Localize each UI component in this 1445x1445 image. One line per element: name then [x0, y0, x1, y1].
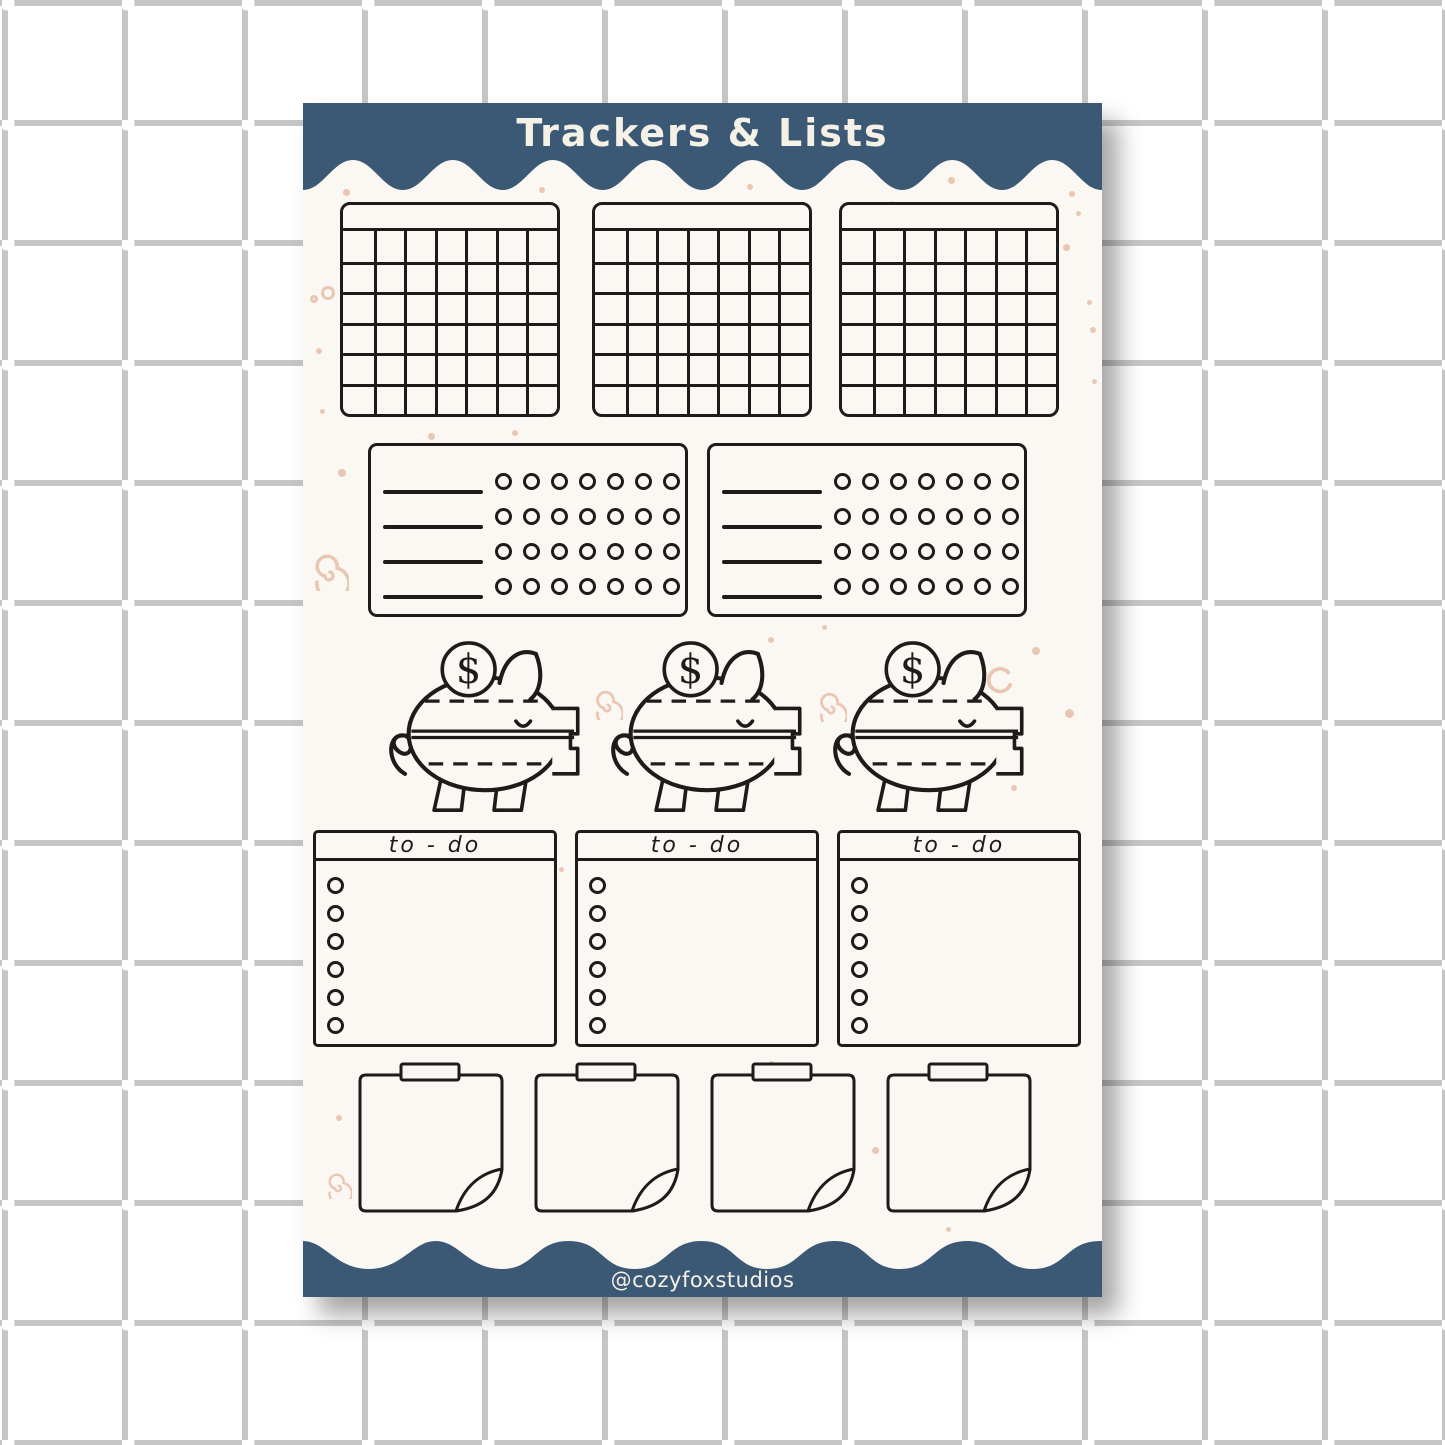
calendar-cell — [595, 292, 626, 323]
calendar-cell — [778, 353, 809, 384]
calendar-cell — [995, 262, 1026, 293]
doodle-ring-icon — [321, 286, 335, 300]
calendar-cell — [778, 231, 809, 262]
calendar-cell — [873, 353, 904, 384]
tracker-circle — [862, 543, 879, 560]
calendar-cell — [687, 231, 718, 262]
doodle-dot-icon — [1069, 191, 1075, 197]
calendar-cell — [626, 262, 657, 293]
tracker-circle — [974, 543, 991, 560]
tracker-circle — [635, 473, 652, 490]
calendar-cell — [656, 323, 687, 354]
calendar-cell — [374, 353, 405, 384]
calendar-cell — [873, 323, 904, 354]
calendar-cell — [873, 262, 904, 293]
tracker-circle — [635, 543, 652, 560]
tracker-circle — [974, 473, 991, 490]
calendar-cell — [496, 292, 527, 323]
doodle-dot-icon — [946, 1227, 951, 1232]
calendar-cell — [404, 231, 435, 262]
calendar-cell — [934, 292, 965, 323]
doodle-dot-icon — [1076, 211, 1081, 216]
calendar-header-blank — [343, 205, 557, 231]
doodle-dot-icon — [338, 469, 346, 477]
calendar-cell — [903, 384, 934, 415]
doodle-dot-icon — [316, 348, 322, 354]
calendar-cell — [687, 292, 718, 323]
calendar-cell — [995, 231, 1026, 262]
doodle-spiral-icon — [324, 1171, 352, 1203]
calendar-cell — [656, 353, 687, 384]
calendar-cell — [595, 323, 626, 354]
tracker-circle — [1002, 543, 1019, 560]
tracker-circle — [523, 578, 540, 595]
todo-checkbox-circle — [327, 961, 344, 978]
todo-checkbox-circle — [589, 961, 606, 978]
writing-line — [722, 525, 822, 529]
tracker-circle — [495, 578, 512, 595]
doodle-dot-icon — [822, 625, 827, 630]
doodle-dot-icon — [1063, 244, 1070, 251]
doodle-dot-icon — [512, 430, 518, 436]
calendar-cell — [778, 292, 809, 323]
todo-checkbox-circle — [589, 905, 606, 922]
todo-checkbox-circle — [851, 905, 868, 922]
calendar-cell — [404, 292, 435, 323]
tracker-circle — [834, 578, 851, 595]
tracker-circle — [890, 543, 907, 560]
calendar-cell — [748, 262, 779, 293]
calendar-cell — [748, 384, 779, 415]
calendar-cell — [343, 262, 374, 293]
calendar-cell — [626, 384, 657, 415]
calendar-cell — [687, 262, 718, 293]
doodle-dot-icon — [1090, 327, 1096, 333]
tracker-circle — [918, 508, 935, 525]
todo-checkbox-circle — [589, 989, 606, 1006]
calendar-cell — [374, 384, 405, 415]
calendar-cell — [496, 323, 527, 354]
calendar-cell — [717, 353, 748, 384]
writing-line — [383, 525, 483, 529]
calendar-cell — [717, 323, 748, 354]
tracker-circle — [663, 508, 680, 525]
calendar-cell — [465, 231, 496, 262]
todo-header-label: to - do — [578, 833, 816, 861]
calendar-cell — [496, 384, 527, 415]
taped-note-sticker — [704, 1061, 862, 1217]
tracker-circle — [862, 473, 879, 490]
todo-checkbox-circle — [327, 1017, 344, 1034]
calendar-cell — [995, 353, 1026, 384]
tracker-circle — [862, 578, 879, 595]
tracker-circle — [607, 473, 624, 490]
calendar-grid — [343, 231, 557, 414]
tracker-circle — [495, 543, 512, 560]
todo-checkbox-circle — [589, 1017, 606, 1034]
todo-checkbox-circle — [851, 989, 868, 1006]
doodle-dot-icon — [559, 867, 564, 872]
piggy-bank-sticker — [385, 641, 585, 814]
calendar-cell — [526, 353, 557, 384]
calendar-cell — [842, 231, 873, 262]
todo-list-sticker: to - do — [313, 830, 557, 1047]
calendar-cell — [435, 262, 466, 293]
tracker-circle — [663, 473, 680, 490]
calendar-cell — [343, 353, 374, 384]
piggy-bank-sticker — [829, 641, 1029, 814]
tracker-circle — [974, 508, 991, 525]
tracker-circle — [663, 543, 680, 560]
calendar-cell — [964, 353, 995, 384]
tracker-circle — [946, 473, 963, 490]
tracker-circle — [1002, 473, 1019, 490]
calendar-cell — [873, 292, 904, 323]
tracker-circle — [862, 508, 879, 525]
calendar-cell — [903, 231, 934, 262]
tracker-circle — [607, 508, 624, 525]
doodle-dot-icon — [1087, 300, 1092, 305]
doodle-dot-icon — [1032, 647, 1040, 655]
calendar-cell — [626, 231, 657, 262]
tracker-circle — [551, 543, 568, 560]
calendar-cell — [526, 323, 557, 354]
calendar-cell — [496, 262, 527, 293]
calendar-cell — [526, 292, 557, 323]
tracker-circle — [551, 473, 568, 490]
tracker-circle — [607, 543, 624, 560]
calendar-cell — [435, 384, 466, 415]
todo-header-label: to - do — [316, 833, 554, 861]
tracker-circle — [495, 473, 512, 490]
calendar-cell — [343, 292, 374, 323]
calendar-cell — [934, 353, 965, 384]
calendar-cell — [903, 262, 934, 293]
calendar-cell — [374, 262, 405, 293]
todo-checkbox-circle — [327, 905, 344, 922]
tracker-circle — [918, 578, 935, 595]
todo-checkbox-circle — [327, 877, 344, 894]
calendar-cell — [903, 353, 934, 384]
writing-line — [722, 560, 822, 564]
tracker-circle — [834, 543, 851, 560]
tracker-circle — [946, 508, 963, 525]
calendar-cell — [435, 323, 466, 354]
calendar-grid-sticker — [839, 202, 1059, 417]
calendar-cell — [995, 384, 1026, 415]
tracker-circle — [1002, 578, 1019, 595]
tracker-circle — [607, 578, 624, 595]
calendar-cell — [1025, 231, 1056, 262]
calendar-cell — [1025, 353, 1056, 384]
habit-tracker-sticker — [707, 443, 1027, 617]
calendar-grid-sticker — [592, 202, 812, 417]
todo-checkbox-circle — [851, 961, 868, 978]
calendar-cell — [626, 353, 657, 384]
doodle-dot-icon — [428, 433, 435, 440]
calendar-cell — [934, 384, 965, 415]
calendar-cell — [595, 231, 626, 262]
calendar-cell — [595, 353, 626, 384]
todo-checkbox-circle — [589, 933, 606, 950]
calendar-cell — [748, 231, 779, 262]
page-background-grid: { "page": { "title_label": "Trackers & L… — [0, 0, 1445, 1445]
calendar-cell — [687, 323, 718, 354]
writing-line — [722, 595, 822, 599]
calendar-cell — [748, 292, 779, 323]
tracker-circle — [1002, 508, 1019, 525]
calendar-cell — [778, 384, 809, 415]
todo-list-sticker: to - do — [837, 830, 1081, 1047]
credit-handle: @cozyfoxstudios — [303, 1267, 1102, 1293]
calendar-cell — [526, 384, 557, 415]
calendar-cell — [626, 292, 657, 323]
calendar-cell — [435, 231, 466, 262]
todo-checkbox-circle — [589, 877, 606, 894]
calendar-cell — [717, 262, 748, 293]
tracker-circle — [579, 508, 596, 525]
sheet-title: Trackers & Lists — [303, 111, 1102, 155]
calendar-cell — [435, 292, 466, 323]
calendar-cell — [465, 292, 496, 323]
calendar-cell — [343, 231, 374, 262]
calendar-cell — [903, 292, 934, 323]
tracker-circle — [946, 543, 963, 560]
calendar-cell — [374, 231, 405, 262]
piggy-bank-sticker — [607, 641, 807, 814]
calendar-cell — [1025, 262, 1056, 293]
calendar-cell — [1025, 292, 1056, 323]
tracker-circle — [834, 508, 851, 525]
calendar-cell — [404, 353, 435, 384]
calendar-cell — [842, 353, 873, 384]
calendar-cell — [465, 353, 496, 384]
todo-list-sticker: to - do — [575, 830, 819, 1047]
calendar-cell — [374, 292, 405, 323]
calendar-grid — [842, 231, 1056, 414]
calendar-cell — [717, 231, 748, 262]
calendar-cell — [343, 323, 374, 354]
calendar-cell — [595, 384, 626, 415]
calendar-cell — [964, 384, 995, 415]
tracker-circle — [523, 473, 540, 490]
tracker-circle — [495, 508, 512, 525]
calendar-cell — [496, 353, 527, 384]
calendar-cell — [748, 353, 779, 384]
calendar-cell — [656, 292, 687, 323]
calendar-cell — [465, 323, 496, 354]
tracker-circle — [523, 543, 540, 560]
tracker-circle — [551, 508, 568, 525]
doodle-dot-icon — [336, 1115, 342, 1121]
calendar-cell — [374, 323, 405, 354]
calendar-cell — [964, 292, 995, 323]
habit-tracker-sticker — [368, 443, 688, 617]
calendar-cell — [995, 292, 1026, 323]
doodle-spiral-icon — [309, 551, 349, 595]
calendar-grid — [595, 231, 809, 414]
doodle-ring-icon — [310, 295, 318, 303]
tracker-circle — [918, 473, 935, 490]
tracker-circle — [523, 508, 540, 525]
tracker-circle — [918, 543, 935, 560]
calendar-cell — [934, 323, 965, 354]
tracker-circle — [551, 578, 568, 595]
calendar-cell — [656, 231, 687, 262]
calendar-cell — [656, 384, 687, 415]
tracker-circle — [579, 543, 596, 560]
calendar-cell — [435, 353, 466, 384]
calendar-cell — [873, 384, 904, 415]
tracker-circle — [663, 578, 680, 595]
calendar-cell — [404, 262, 435, 293]
calendar-cell — [626, 323, 657, 354]
doodle-dot-icon — [872, 1147, 879, 1154]
calendar-cell — [934, 262, 965, 293]
tracker-circle — [974, 578, 991, 595]
writing-line — [383, 595, 483, 599]
calendar-cell — [687, 384, 718, 415]
calendar-cell — [656, 262, 687, 293]
tracker-circle — [890, 473, 907, 490]
taped-note-sticker — [880, 1061, 1038, 1217]
todo-checkbox-circle — [851, 1017, 868, 1034]
tracker-circle — [635, 508, 652, 525]
calendar-cell — [465, 384, 496, 415]
calendar-header-blank — [595, 205, 809, 231]
tracker-circle — [890, 508, 907, 525]
calendar-cell — [934, 231, 965, 262]
calendar-grid-sticker — [340, 202, 560, 417]
calendar-cell — [964, 231, 995, 262]
writing-line — [383, 490, 483, 494]
calendar-cell — [842, 323, 873, 354]
tracker-circle — [834, 473, 851, 490]
todo-checkbox-circle — [327, 989, 344, 1006]
calendar-cell — [842, 292, 873, 323]
calendar-cell — [404, 323, 435, 354]
tracker-circle — [635, 578, 652, 595]
sticker-sheet: Trackers & Lists to - do to - do to - do… — [303, 103, 1102, 1297]
todo-checkbox-circle — [851, 877, 868, 894]
calendar-cell — [717, 292, 748, 323]
calendar-cell — [778, 262, 809, 293]
calendar-cell — [465, 262, 496, 293]
taped-note-sticker — [528, 1061, 686, 1217]
calendar-cell — [717, 384, 748, 415]
calendar-cell — [526, 262, 557, 293]
calendar-cell — [687, 353, 718, 384]
calendar-cell — [595, 262, 626, 293]
tracker-circle — [890, 578, 907, 595]
calendar-cell — [842, 384, 873, 415]
calendar-cell — [873, 231, 904, 262]
calendar-header-blank — [842, 205, 1056, 231]
calendar-cell — [1025, 384, 1056, 415]
calendar-cell — [903, 323, 934, 354]
calendar-cell — [842, 262, 873, 293]
tracker-circle — [579, 473, 596, 490]
taped-note-sticker — [352, 1061, 510, 1217]
doodle-dot-icon — [1065, 709, 1074, 718]
calendar-cell — [964, 262, 995, 293]
calendar-cell — [526, 231, 557, 262]
todo-checkbox-circle — [327, 933, 344, 950]
calendar-cell — [496, 231, 527, 262]
doodle-dot-icon — [320, 409, 325, 414]
doodle-dot-icon — [1092, 379, 1097, 384]
calendar-cell — [778, 323, 809, 354]
tracker-circle — [946, 578, 963, 595]
calendar-cell — [748, 323, 779, 354]
writing-line — [383, 560, 483, 564]
calendar-cell — [964, 323, 995, 354]
tracker-circle — [579, 578, 596, 595]
calendar-cell — [404, 384, 435, 415]
writing-line — [722, 490, 822, 494]
todo-checkbox-circle — [851, 933, 868, 950]
todo-header-label: to - do — [840, 833, 1078, 861]
calendar-cell — [343, 384, 374, 415]
calendar-cell — [1025, 323, 1056, 354]
calendar-cell — [995, 323, 1026, 354]
